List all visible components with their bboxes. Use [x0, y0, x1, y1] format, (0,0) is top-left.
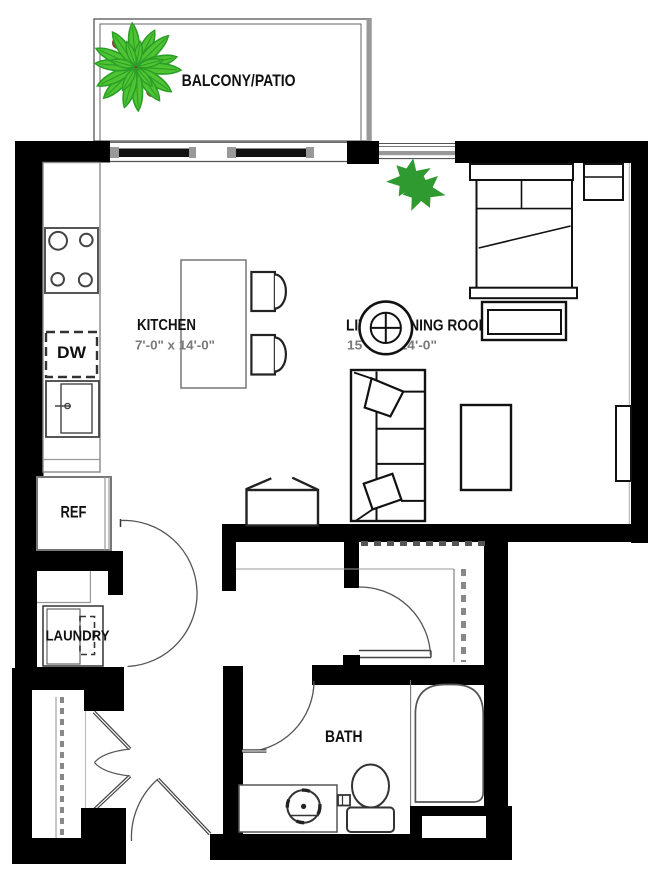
svg-text:BATH: BATH [325, 728, 363, 746]
svg-text:REF: REF [61, 503, 87, 522]
svg-text:BALCONY/PATIO: BALCONY/PATIO [182, 72, 296, 90]
svg-text:KITCHEN: KITCHEN [137, 317, 196, 334]
svg-text:LAUNDRY: LAUNDRY [46, 628, 110, 645]
svg-text:7'-0" x 14'-0": 7'-0" x 14'-0" [135, 338, 215, 353]
svg-text:DW: DW [57, 344, 86, 362]
